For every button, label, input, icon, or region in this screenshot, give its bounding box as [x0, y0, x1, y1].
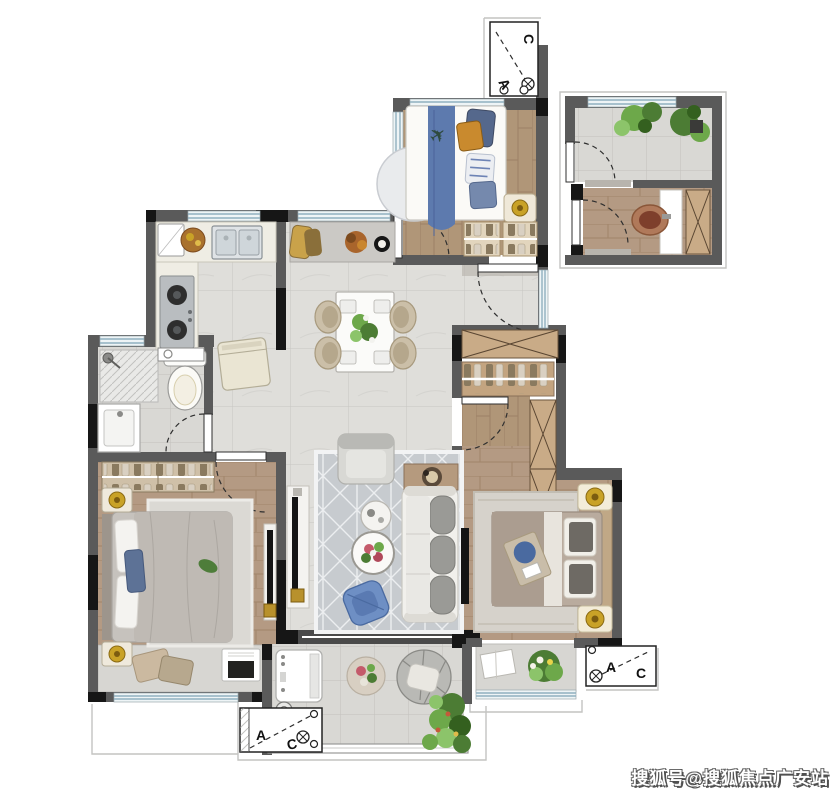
section-letter-c: C [636, 665, 646, 681]
refrigerator [217, 337, 270, 390]
gold-speaker [264, 604, 276, 617]
kids-pillow-blue [469, 181, 497, 209]
armchair [338, 434, 394, 484]
kids-shoe-cabinet [464, 222, 537, 256]
tv-screen [292, 497, 298, 597]
bedroom2-bed [492, 508, 612, 610]
section-letter-a: A [606, 659, 616, 675]
master-tv-console [264, 524, 276, 620]
sofa [402, 486, 458, 622]
master-bed [102, 512, 232, 642]
kids-blanket [428, 106, 455, 224]
blue-pillow [124, 549, 146, 592]
cutting-board [181, 228, 205, 252]
laptop [222, 649, 260, 681]
kitchen-window [188, 211, 260, 221]
kids-pillow-orange [456, 120, 484, 151]
dried-plant [345, 231, 367, 253]
foyer-side-window [539, 270, 548, 328]
coffee-table-large [352, 532, 394, 574]
floor-plan-image: ✈ C A [0, 0, 832, 795]
kids-pillow-striped [465, 153, 495, 185]
unit-threshold-bottom [585, 249, 631, 256]
master-nightstand-bottom [102, 642, 132, 666]
coffee-table-small [361, 501, 391, 531]
gas-stove [160, 276, 194, 348]
overhead-wardrobe [462, 330, 558, 358]
shower-area [100, 350, 158, 402]
watermark-text: 搜狐号@搜狐焦点广安站 [631, 764, 829, 789]
bedroom2-tv [461, 528, 469, 604]
ac-platform-top: C A [490, 22, 538, 96]
bench-pillow [304, 228, 323, 257]
clothes-rack [462, 362, 554, 396]
bathroom-window [100, 336, 144, 346]
dining-table [336, 292, 394, 372]
ac-platform-bottom-right: A C [586, 646, 656, 686]
potted-plant [347, 657, 385, 695]
washing-machine [276, 650, 322, 702]
kitchen-corner-cabinet [158, 224, 184, 256]
kids-bed: ✈ [406, 106, 506, 236]
window-bench [289, 222, 395, 262]
gold-speaker [291, 589, 304, 602]
bedroom2-baywindow-blinds [476, 690, 576, 699]
vent-box [158, 348, 204, 361]
floor-plan-svg: ✈ C A [0, 0, 832, 795]
dining-window [298, 211, 390, 221]
kitchen-sink [212, 226, 262, 259]
master-bedroom-window [114, 693, 238, 702]
master-nightstand-top [102, 488, 132, 512]
bedroom2-nightstand-top [578, 484, 612, 510]
unit-threshold-top [585, 180, 631, 187]
ac-platform-bottom-left: A C [240, 708, 322, 753]
kids-nightstand [504, 194, 536, 222]
section-letter-c: C [521, 34, 537, 44]
hanging-chair [397, 650, 451, 704]
bedroom2-nightstand-bottom [578, 606, 612, 632]
tv-console [287, 486, 309, 608]
bathroom-vanity [98, 404, 140, 452]
tv-figurine [293, 488, 302, 496]
open-book [480, 649, 516, 678]
unit-wardrobe [686, 190, 710, 254]
section-letter-a: A [256, 727, 266, 743]
master-tv [267, 530, 273, 614]
